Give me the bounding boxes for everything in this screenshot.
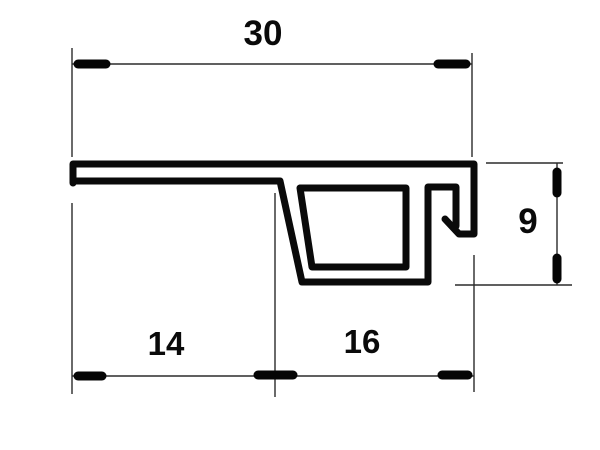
dim-label-16: 16 (344, 323, 381, 360)
drawing-page: 30 14 16 9 (0, 0, 600, 450)
dim-label-14: 14 (148, 325, 185, 362)
dimension-top-width: 30 (72, 14, 472, 157)
dim-label-30: 30 (244, 14, 283, 53)
profile-inner-channel (300, 188, 406, 267)
profile-cross-section (73, 164, 474, 282)
dimension-bottom-widths: 14 16 (72, 193, 474, 397)
dim-label-9: 9 (518, 202, 537, 241)
profile-outer-outline (73, 164, 474, 234)
technical-drawing-canvas: 30 14 16 9 (0, 0, 600, 450)
